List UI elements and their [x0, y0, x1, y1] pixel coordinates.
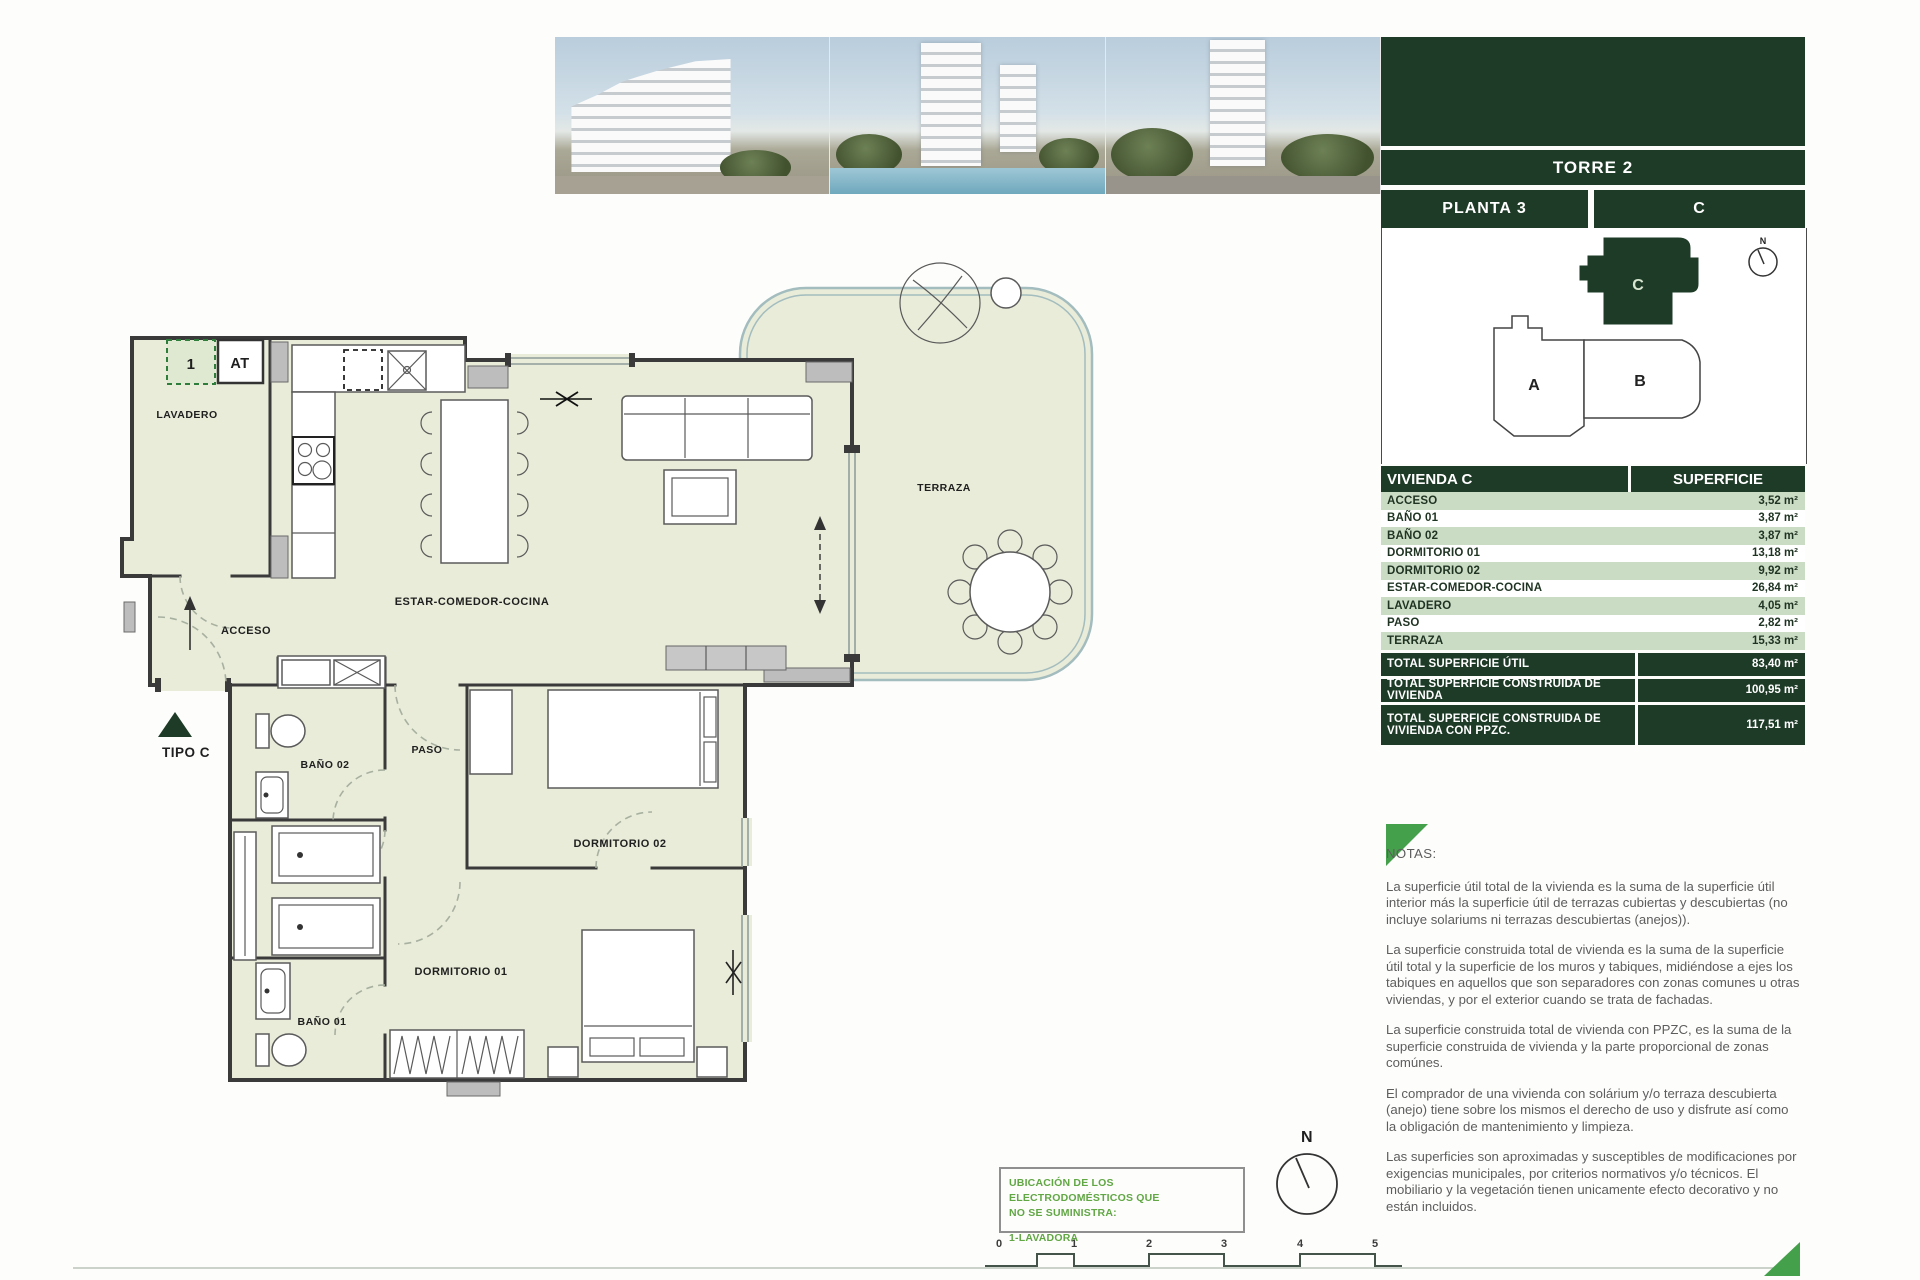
table-title: VIVIENDA C	[1381, 466, 1628, 492]
label-acceso: ACCESO	[221, 625, 271, 637]
label-paso: PASO	[412, 744, 443, 756]
tag-1: 1	[187, 356, 196, 373]
total-value: 100,95 m²	[1635, 679, 1805, 702]
tipo-c-label: TIPO C	[162, 745, 210, 760]
tipo-c-marker: TIPO C	[158, 712, 210, 760]
row-label: DORMITORIO 01	[1381, 547, 1628, 559]
unit-a-shape	[1494, 316, 1584, 436]
table-total-row: TOTAL SUPERFICIE CONSTRUIDA DE VIVIENDA …	[1381, 705, 1805, 745]
scale-tick-0: 0	[996, 1238, 1002, 1250]
white-tower	[1210, 40, 1265, 166]
notas-paragraph: La superficie útil total de la vivienda …	[1386, 879, 1800, 929]
photo-building-terraces	[555, 37, 830, 194]
row-label: BAÑO 01	[1381, 512, 1628, 524]
total-label: TOTAL SUPERFICIE CONSTRUIDA DE VIVIENDA	[1381, 679, 1635, 702]
row-value: 26,84 m²	[1628, 582, 1805, 594]
row-value: 13,18 m²	[1628, 547, 1805, 559]
unit-b-letter: B	[1634, 373, 1646, 390]
notas-paragraph: El comprador de una vivienda con soláriu…	[1386, 1086, 1800, 1136]
table-total-row: TOTAL SUPERFICIE CONSTRUIDA DE VIVIENDA1…	[1381, 679, 1805, 702]
table-total-row: TOTAL SUPERFICIE ÚTIL83,40 m²	[1381, 653, 1805, 676]
pool	[830, 168, 1104, 194]
entry-opening	[155, 678, 231, 692]
key-plan-drawing: A B C N	[1382, 228, 1806, 464]
label-bano01: BAÑO 01	[297, 1015, 346, 1028]
unit-bar: C	[1594, 190, 1805, 228]
corner-triangle-bottom	[1764, 1242, 1800, 1276]
scale-tick-4: 4	[1297, 1238, 1304, 1250]
scale-tick-5: 5	[1372, 1238, 1378, 1250]
white-tower-small	[1000, 65, 1036, 151]
area-table: VIVIENDA C SUPERFICIE ACCESO3,52 m² BAÑO…	[1381, 466, 1805, 745]
row-value: 3,87 m²	[1628, 530, 1805, 542]
appliance-note-box: UBICACIÓN DE LOS ELECTRODOMÉSTICOS QUE N…	[999, 1167, 1245, 1233]
notas-section: NOTAS: La superficie útil total de la vi…	[1386, 846, 1800, 1229]
appliance-note-line2: NO SE SUMINISTRA:	[1009, 1206, 1235, 1221]
total-label: TOTAL SUPERFICIE ÚTIL	[1381, 653, 1635, 676]
compass-n-label: N	[1301, 1129, 1313, 1146]
planta-bar: PLANTA 3	[1381, 190, 1588, 228]
tag-at: AT	[230, 356, 249, 372]
white-tower	[921, 43, 981, 165]
lavadero-appliance-slot: 1 AT	[167, 340, 263, 384]
label-dormitorio02: DORMITORIO 02	[573, 838, 666, 850]
label-bano02: BAÑO 02	[300, 758, 349, 771]
table-row: ACCESO3,52 m²	[1381, 492, 1805, 510]
row-label: ESTAR-COMEDOR-COCINA	[1381, 582, 1628, 594]
label-lavadero: LAVADERO	[156, 409, 217, 421]
row-label: DORMITORIO 02	[1381, 565, 1628, 577]
ground	[555, 176, 829, 194]
table-row: PASO2,82 m²	[1381, 615, 1805, 633]
bedroom-02-furniture	[470, 690, 718, 788]
key-plan: A B C N	[1381, 228, 1807, 464]
notas-paragraph: Las superficies son aproximadas y suscep…	[1386, 1149, 1800, 1215]
row-label: LAVADERO	[1381, 600, 1628, 612]
row-value: 9,92 m²	[1628, 565, 1805, 577]
appliance-note-item: 1-LAVADORA	[1009, 1231, 1235, 1246]
notas-paragraph: La superficie construida total de vivien…	[1386, 942, 1800, 1008]
row-value: 3,87 m²	[1628, 512, 1805, 524]
keyplan-compass-needle	[1758, 250, 1764, 264]
row-label: PASO	[1381, 617, 1628, 629]
row-label: TERRAZA	[1381, 635, 1628, 647]
table-superficie-header: SUPERFICIE	[1631, 466, 1805, 492]
panel-header-block	[1381, 37, 1805, 146]
table-row: TERRAZA15,33 m²	[1381, 632, 1805, 650]
label-dormitorio01: DORMITORIO 01	[414, 966, 507, 978]
label-estar: ESTAR-COMEDOR-COCINA	[395, 596, 550, 608]
row-value: 3,52 m²	[1628, 495, 1805, 507]
appliance-note-line1: UBICACIÓN DE LOS ELECTRODOMÉSTICOS QUE	[1009, 1176, 1235, 1206]
notas-title: NOTAS:	[1386, 846, 1800, 863]
row-label: BAÑO 02	[1381, 530, 1628, 542]
table-row: BAÑO 013,87 m²	[1381, 510, 1805, 528]
area-table-header: VIVIENDA C SUPERFICIE	[1381, 466, 1805, 492]
photo-tower-pool	[830, 37, 1105, 194]
total-value: 83,40 m²	[1635, 653, 1805, 676]
row-label: ACCESO	[1381, 495, 1628, 507]
row-value: 15,33 m²	[1628, 635, 1805, 647]
table-row: ESTAR-COMEDOR-COCINA26,84 m²	[1381, 580, 1805, 598]
total-value: 117,51 m²	[1635, 705, 1805, 745]
table-row: BAÑO 023,87 m²	[1381, 527, 1805, 545]
notas-paragraph: La superficie construida total de vivien…	[1386, 1022, 1800, 1072]
plan-sheet: 1 AT	[0, 0, 1920, 1280]
table-row: DORMITORIO 0113,18 m²	[1381, 545, 1805, 563]
ground	[1106, 176, 1380, 194]
terrace-glass-door	[844, 445, 860, 662]
label-terraza: TERRAZA	[917, 482, 971, 494]
total-label: TOTAL SUPERFICIE CONSTRUIDA DE VIVIENDA …	[1381, 705, 1635, 745]
photo-tower-street	[1106, 37, 1381, 194]
photo-strip	[555, 37, 1381, 194]
table-row: LAVADERO4,05 m²	[1381, 597, 1805, 615]
keyplan-north-label: N	[1760, 236, 1767, 246]
row-value: 4,05 m²	[1628, 600, 1805, 612]
compass: N	[1277, 1129, 1337, 1214]
torre-bar: TORRE 2	[1381, 150, 1805, 185]
unit-c-letter: C	[1632, 277, 1644, 294]
row-value: 2,82 m²	[1628, 617, 1805, 629]
unit-a-letter: A	[1528, 377, 1540, 394]
table-row: DORMITORIO 029,92 m²	[1381, 562, 1805, 580]
